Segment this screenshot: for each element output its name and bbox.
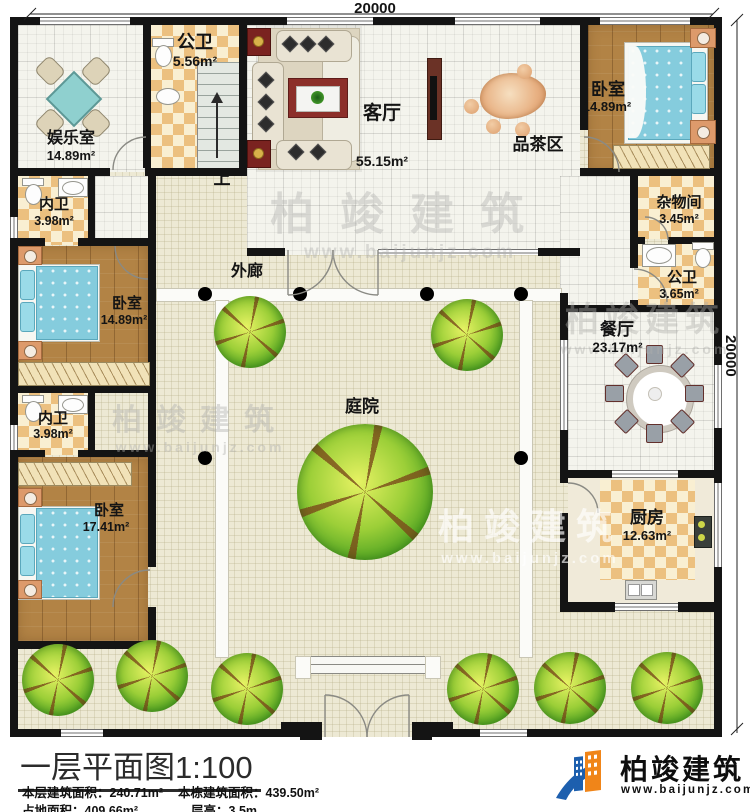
window [40,17,130,25]
floor-area-label: 本层建筑面积： [22,786,110,800]
title-block: 一层平面图1:100 本层建筑面积：240.71m² 本栋建筑面积：439.50… [0,740,750,812]
toilet [695,248,711,268]
shrub [631,652,703,724]
cabinet-knob [253,36,264,47]
building-area-value: 439.50m² [266,786,320,800]
plan-scale: 1:100 [175,750,253,785]
pillow [20,546,35,576]
window [600,17,690,25]
shrub [447,653,519,725]
wardrobe [18,362,150,386]
nightstand [18,341,42,360]
window [378,249,538,255]
room-label-storage: 杂物间 [644,195,714,211]
room-area-entertainment: 14.89m² [31,149,111,162]
room-label-kitchen: 厨房 [617,509,677,527]
sink [646,247,672,264]
room-area-ensuite-1: 3.98m² [22,215,86,228]
courtyard-tree [297,424,433,560]
room-label-ensuite-2: 内卫 [23,411,83,427]
room-area-bedroom-tr: 14.89m² [567,100,647,113]
brand-name: 柏竣建筑 [620,748,744,788]
nightstand [18,246,42,265]
sink [62,181,84,195]
pillow [20,302,35,332]
tv [430,76,437,120]
window [615,603,678,611]
tea-stool [486,119,501,134]
nightstand [18,580,42,599]
column [514,287,528,301]
stair-up-label: 上 [209,170,235,188]
veranda-strip-right [519,300,533,658]
cabinet-knob [253,148,264,159]
floor-area-value: 240.71m² [110,786,164,800]
dimension-top: 20000 [340,0,410,17]
window [61,729,103,737]
column [514,451,528,465]
column [198,451,212,465]
room-area-kitchen: 12.63m² [610,529,684,542]
room-area-living: 55.15m² [342,154,422,168]
pillow [20,270,35,300]
dining-chair [605,385,624,402]
brand-logo-icon [552,746,616,804]
right-hallway-floor [560,176,638,306]
storey-label: 层高： [191,804,229,812]
pillow [691,52,706,82]
tea-stool [517,64,532,79]
dining-chair [685,385,704,402]
column [420,287,434,301]
window [612,470,678,478]
room-label-courtyard: 庭院 [327,398,397,416]
window [714,365,722,428]
room-label-bedroom-tr: 卧室 [573,81,643,99]
room-area-ensuite-2: 3.98m² [21,428,85,441]
shrub [211,653,283,725]
window [10,425,18,453]
window [560,340,568,430]
land-area-value: 409.66m² [85,804,139,812]
room-label-entertainment: 娱乐室 [31,131,111,148]
window [714,483,722,567]
room-area-public-bath-right: 3.65m² [644,288,714,301]
window [455,17,540,25]
room-area-bedroom-l2: 17.41m² [69,521,143,534]
window [287,17,373,25]
room-label-bedroom-l1: 卧室 [92,296,162,312]
nightstand [18,488,42,507]
room-label-public-bath-right: 公卫 [652,270,712,286]
dining-table-center [648,387,662,401]
room-label-tea-area: 品茶区 [498,136,578,154]
pillow [20,514,35,544]
room-area-storage: 3.45m² [644,213,714,226]
room-area-bedroom-l1: 14.89m² [87,314,161,327]
floor-plan-page: 上 [0,0,750,812]
staircase [197,62,241,168]
porch-pillar-right [425,656,441,679]
dimension-right: 20000 [722,335,739,425]
tea-stool [464,99,479,114]
porch-steps [303,656,431,674]
porch-pillar-left [295,656,311,679]
window [480,729,527,737]
pillow [691,84,706,114]
nightstand [690,28,716,48]
stair-arrow-shaft [216,102,218,158]
shrub [431,299,503,371]
plant [311,91,324,104]
burner [698,521,705,528]
shrub [214,296,286,368]
nightstand [690,120,716,144]
room-area-dining: 23.17m² [575,341,660,355]
sink-basin [641,584,653,596]
room-label-ensuite-1: 内卫 [24,197,84,213]
dining-chair [646,424,663,443]
burner [698,534,705,541]
sink-basin [628,584,640,596]
area-stats-line2: 占地面积：409.66m² 层高：3.5m [22,800,257,812]
storey-value: 3.5m [229,804,258,812]
wardrobe [18,462,132,486]
area-stats-line1: 本层建筑面积：240.71m² 本栋建筑面积：439.50m² [22,782,319,801]
shrub [534,652,606,724]
column [293,287,307,301]
plan-title-text: 一层平面图 [20,750,175,785]
building-area-label: 本栋建筑面积： [178,786,266,800]
room-label-veranda: 外廊 [212,264,282,281]
shrub [22,644,94,716]
room-label-dining: 餐厅 [587,321,647,339]
room-label-living: 客厅 [342,104,422,124]
room-label-bedroom-l2: 卧室 [74,503,144,519]
stair-arrow-head [211,92,223,103]
column [198,287,212,301]
room-label-public-bath-top: 公卫 [165,33,225,52]
left-hallway-floor [95,176,148,238]
room-area-public-bath-top: 5.56m² [160,54,230,68]
brand-url: www.baijunjz.com [621,784,750,796]
wardrobe [613,145,710,169]
land-area-label: 占地面积： [22,804,85,812]
shrub [116,640,188,712]
sink [156,88,180,105]
